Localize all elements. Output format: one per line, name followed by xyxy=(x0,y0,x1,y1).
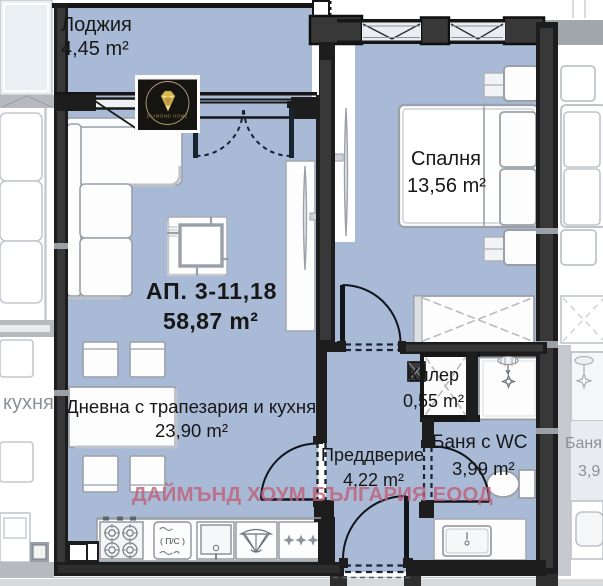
svg-text:ДАЙМЪНД ХОУМ БЪЛГАРИЯ ЕООД: ДАЙМЪНД ХОУМ БЪЛГАРИЯ ЕООД xyxy=(132,482,493,506)
svg-text:Килер: Килер xyxy=(408,365,459,385)
svg-text:3,99 m²: 3,99 m² xyxy=(452,458,515,479)
svg-text:( П/С ): ( П/С ) xyxy=(160,536,185,546)
svg-text:58,87 m²: 58,87 m² xyxy=(163,308,258,334)
svg-text:Спалня: Спалня xyxy=(411,148,481,170)
svg-text:4,45 m²: 4,45 m² xyxy=(61,38,129,60)
svg-text:кухня: кухня xyxy=(3,392,54,414)
svg-text:3,9: 3,9 xyxy=(578,463,600,480)
svg-text:0,55 m²: 0,55 m² xyxy=(403,391,464,411)
svg-text:АП. 3-11,18: АП. 3-11,18 xyxy=(146,278,277,304)
svg-text:Дневна с трапезария и кухня: Дневна с трапезария и кухня xyxy=(66,396,316,417)
svg-text:Баня: Баня xyxy=(565,435,602,452)
svg-text:13,56 m²: 13,56 m² xyxy=(407,175,486,197)
svg-text:23,90 m²: 23,90 m² xyxy=(155,420,228,441)
svg-text:DIAMOND HOME: DIAMOND HOME xyxy=(147,114,188,119)
svg-text:Лоджия: Лоджия xyxy=(61,14,132,36)
svg-text:Баня с WC: Баня с WC xyxy=(432,432,528,453)
svg-text:Преддверие: Преддверие xyxy=(321,445,424,465)
